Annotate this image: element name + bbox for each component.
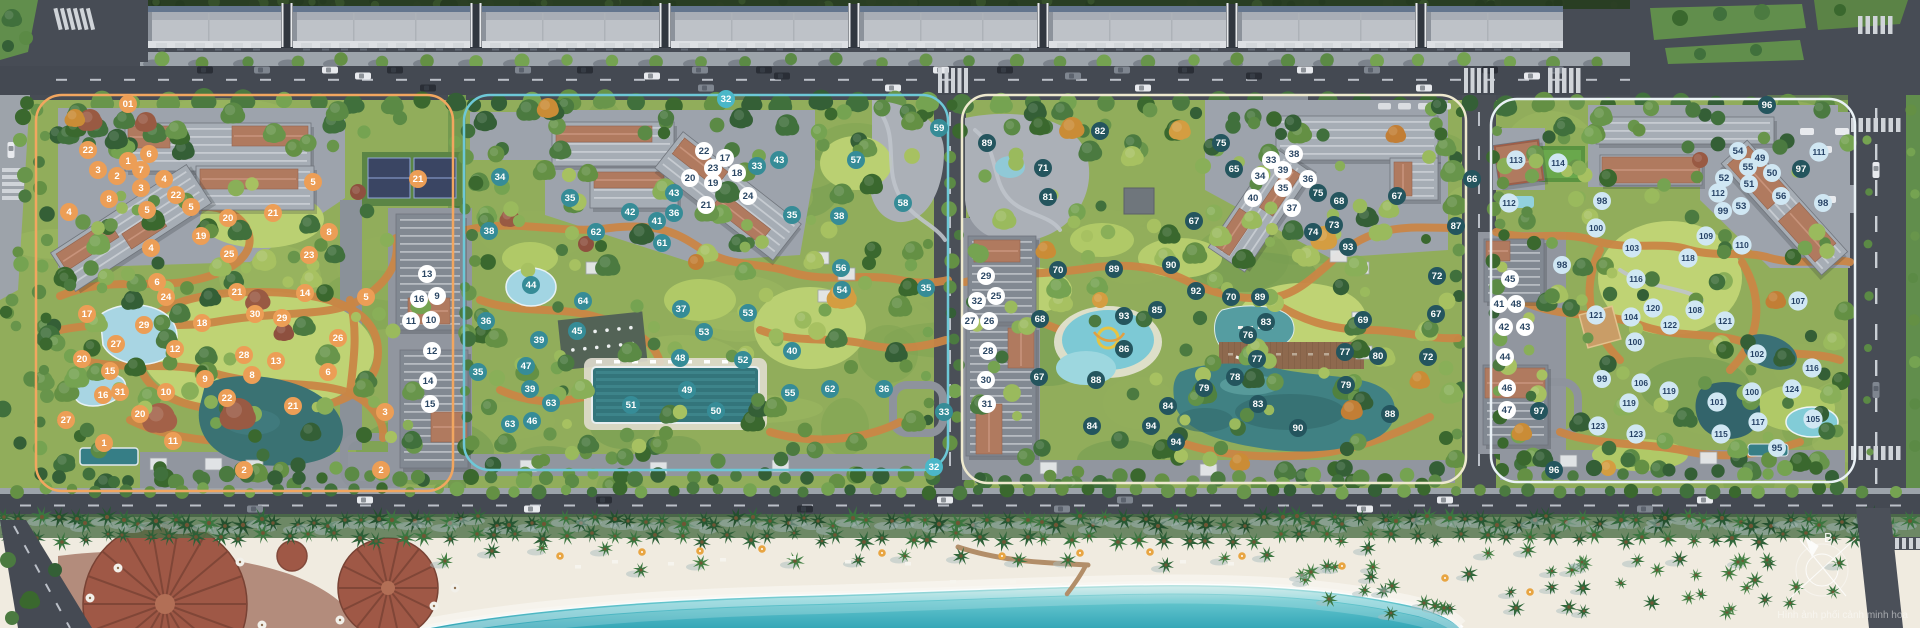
svg-text:B: B bbox=[1824, 530, 1833, 545]
svg-text:Hình ảnh phối cảnh minh hoạ: Hình ảnh phối cảnh minh hoạ bbox=[1777, 609, 1908, 621]
